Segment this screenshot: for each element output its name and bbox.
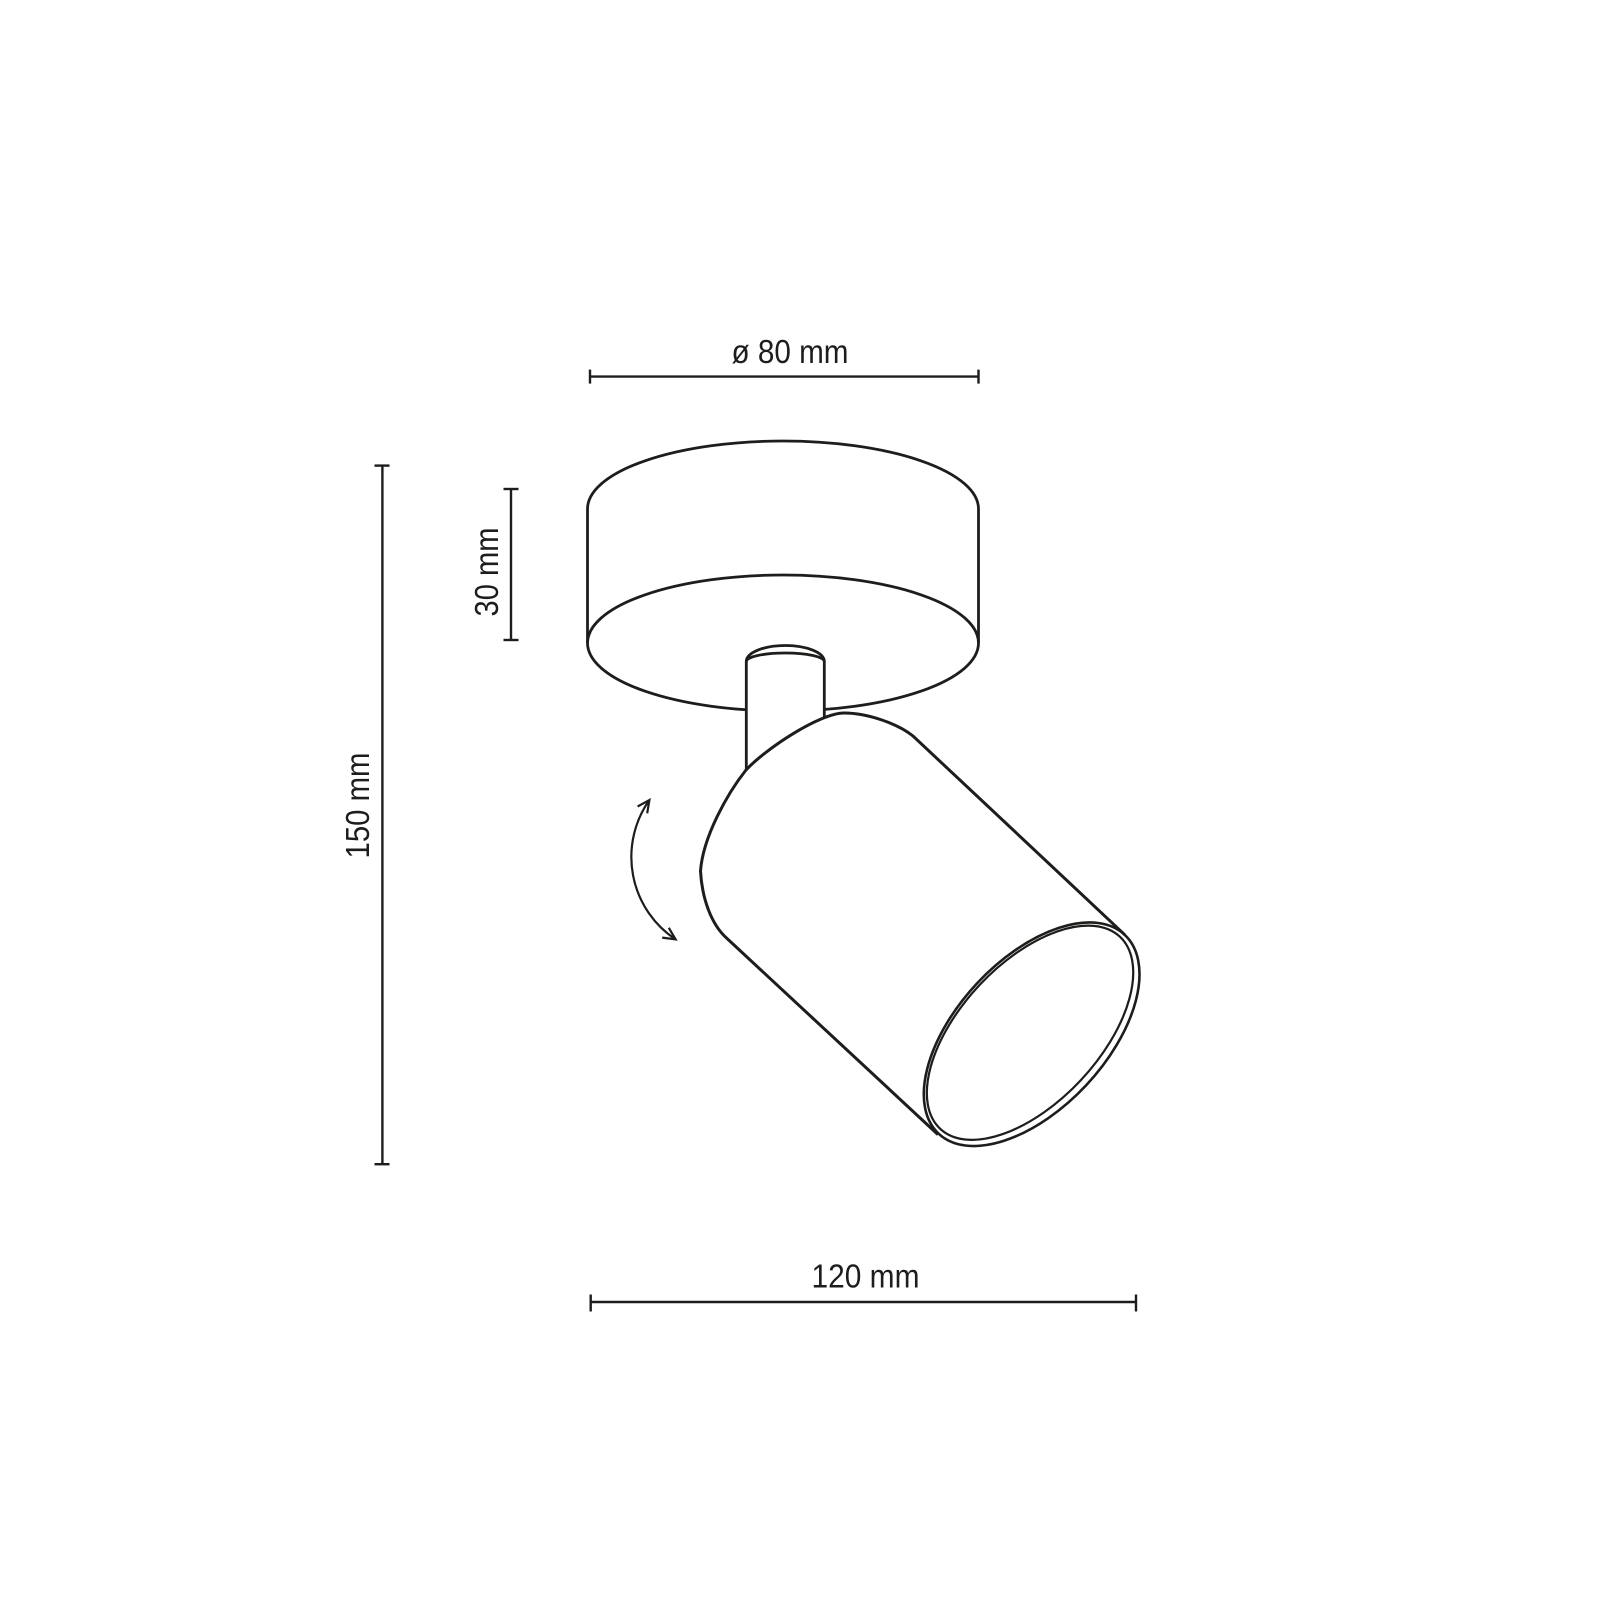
svg-text:150 mm: 150 mm (339, 753, 376, 859)
svg-text:30 mm: 30 mm (468, 528, 505, 617)
svg-text:ø 80 mm: ø 80 mm (732, 333, 849, 370)
svg-text:120 mm: 120 mm (812, 1258, 920, 1295)
